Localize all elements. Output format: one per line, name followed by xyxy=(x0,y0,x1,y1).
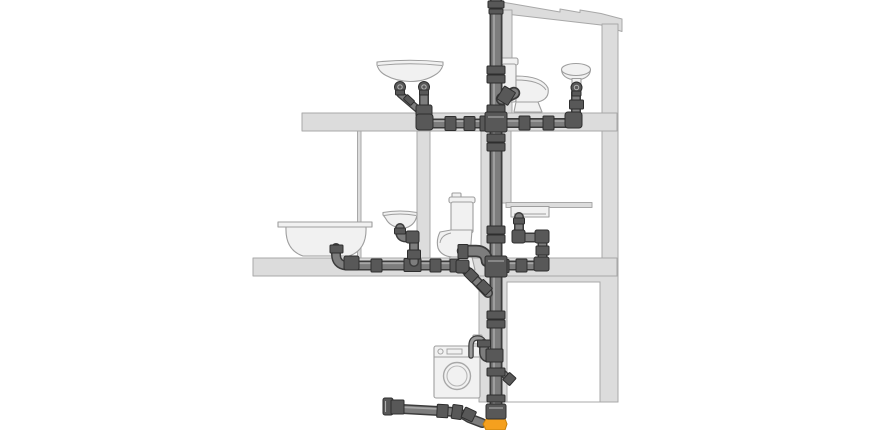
branch-kitchen xyxy=(501,217,549,273)
washing-machine xyxy=(434,335,482,398)
stack-junction-middle xyxy=(485,256,507,277)
sewer-socket xyxy=(483,404,507,430)
stack-junction-top xyxy=(485,112,507,132)
bathtub xyxy=(278,222,372,256)
top-corner-sink xyxy=(562,64,591,84)
ground-floor-room xyxy=(507,282,600,402)
middle-washbasin-trap xyxy=(395,228,421,262)
plumbing-diagram xyxy=(0,0,870,430)
branch-bottom xyxy=(383,398,482,423)
canvas xyxy=(0,0,870,430)
top-washbasin xyxy=(377,60,443,81)
